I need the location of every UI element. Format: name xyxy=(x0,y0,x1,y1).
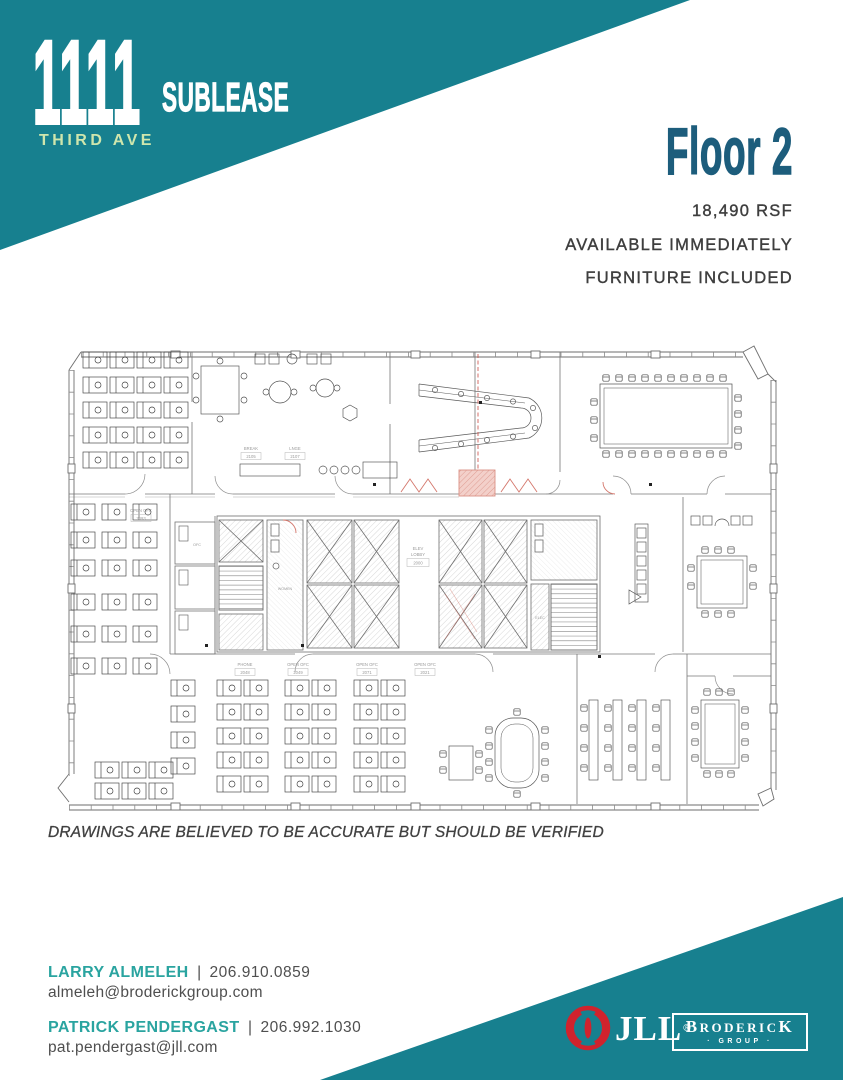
label-open-ofc-3: OPEN OFC xyxy=(356,662,378,667)
contact-name: LARRY ALMELEH xyxy=(48,964,189,981)
label-elec: ELEC xyxy=(535,616,545,620)
sublease-tagline: SUBLEASE xyxy=(162,74,289,121)
broderick-final: K xyxy=(779,1017,795,1036)
label-lounge: LNGE xyxy=(289,446,301,451)
plan-banquette xyxy=(419,384,542,452)
label-open-num-1: 2093 xyxy=(136,516,146,521)
contacts: LARRY ALMELEH | 206.910.0859 almeleh@bro… xyxy=(48,964,361,1057)
label-lounge-num: 2107 xyxy=(290,454,300,459)
plan-bottom-right xyxy=(440,689,748,797)
listing-furniture: FURNITURE INCLUDED xyxy=(565,269,793,288)
building-street: THIRD AVE xyxy=(39,132,155,150)
contact-phone: 206.910.0859 xyxy=(210,964,311,981)
disclaimer-text: DRAWINGS ARE BELIEVED TO BE ACCURATE BUT… xyxy=(48,824,604,842)
label-phone-num: 2048 xyxy=(240,670,250,675)
broderick-initial: B xyxy=(686,1017,700,1036)
floor-title: Floor 2 xyxy=(566,118,793,184)
listing-details: 18,490 RSF AVAILABLE IMMEDIATELY FURNITU… xyxy=(565,202,793,303)
jll-mark-icon xyxy=(564,1004,612,1052)
contact-separator: | xyxy=(193,964,205,981)
label-open-num-3: 2071 xyxy=(362,670,372,675)
plan-exterior-walls xyxy=(58,346,777,810)
label-elev: ELEV xyxy=(413,546,424,551)
broderick-logo: BRODERICK · GROUP · xyxy=(672,1013,808,1051)
label-lobby: LOBBY xyxy=(411,552,425,557)
label-phone: PHONE xyxy=(238,662,253,667)
label-elev-num: 2000 xyxy=(413,561,423,566)
broderick-group-subtitle: · GROUP · xyxy=(674,1038,806,1045)
floor-title-text: Floor 2 xyxy=(666,118,793,184)
label-ofc: OFC xyxy=(193,543,201,547)
contact-name: PATRICK PENDERGAST xyxy=(48,1019,240,1036)
plan-interior-walls xyxy=(69,352,771,804)
plan-right-middle xyxy=(629,516,756,617)
label-open-ofc-2: OPEN OFC xyxy=(287,662,309,667)
listing-availability: AVAILABLE IMMEDIATELY xyxy=(565,236,793,255)
label-open-num-2: 2049 xyxy=(293,670,303,675)
label-open-ofc-4: OPEN OFC xyxy=(414,662,436,667)
floor-plan: OPEN OFC 2093 BREAK 2105 LNGE 2107 ELEV … xyxy=(55,344,790,822)
contact-patrick: PATRICK PENDERGAST | 206.992.1030 pat.pe… xyxy=(48,1019,361,1057)
plan-core xyxy=(217,516,600,652)
plan-large-conference xyxy=(591,375,741,457)
label-break: BREAK xyxy=(244,446,258,451)
contact-email: pat.pendergast@jll.com xyxy=(48,1039,361,1057)
contact-phone: 206.992.1030 xyxy=(260,1019,361,1036)
label-open-ofc-1: OPEN OFC xyxy=(130,508,152,513)
contact-separator: | xyxy=(244,1019,256,1036)
plan-training-room xyxy=(581,700,670,780)
broderick-wordmark: BRODERICK xyxy=(674,1018,806,1036)
listing-rsf: 18,490 RSF xyxy=(565,202,793,221)
contact-larry: LARRY ALMELEH | 206.910.0859 almeleh@bro… xyxy=(48,964,361,1002)
contact-email: almeleh@broderickgroup.com xyxy=(48,984,361,1002)
label-break-num: 2105 xyxy=(246,454,256,459)
label-open-num-4: 2021 xyxy=(420,670,430,675)
label-women: WOMEN xyxy=(278,587,293,591)
building-number: 1111 xyxy=(33,24,142,142)
broderick-middle: RODERIC xyxy=(700,1020,779,1035)
flyer-page: 1111 SUBLEASE THIRD AVE Floor 2 18,490 R… xyxy=(0,0,843,1080)
